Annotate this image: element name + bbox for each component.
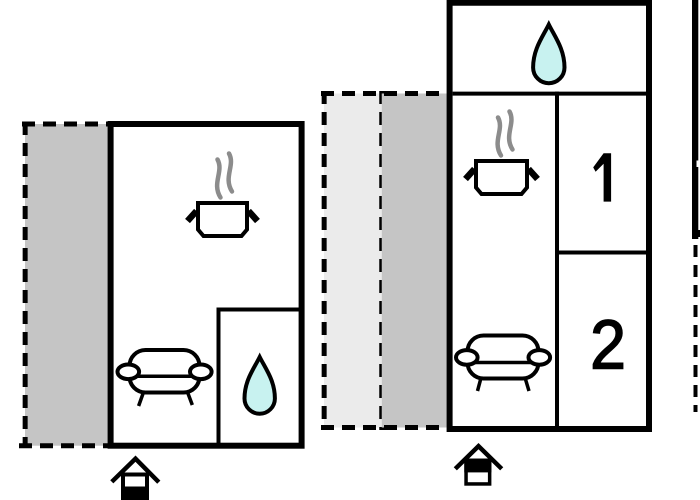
svg-text:2: 2 — [590, 306, 626, 384]
